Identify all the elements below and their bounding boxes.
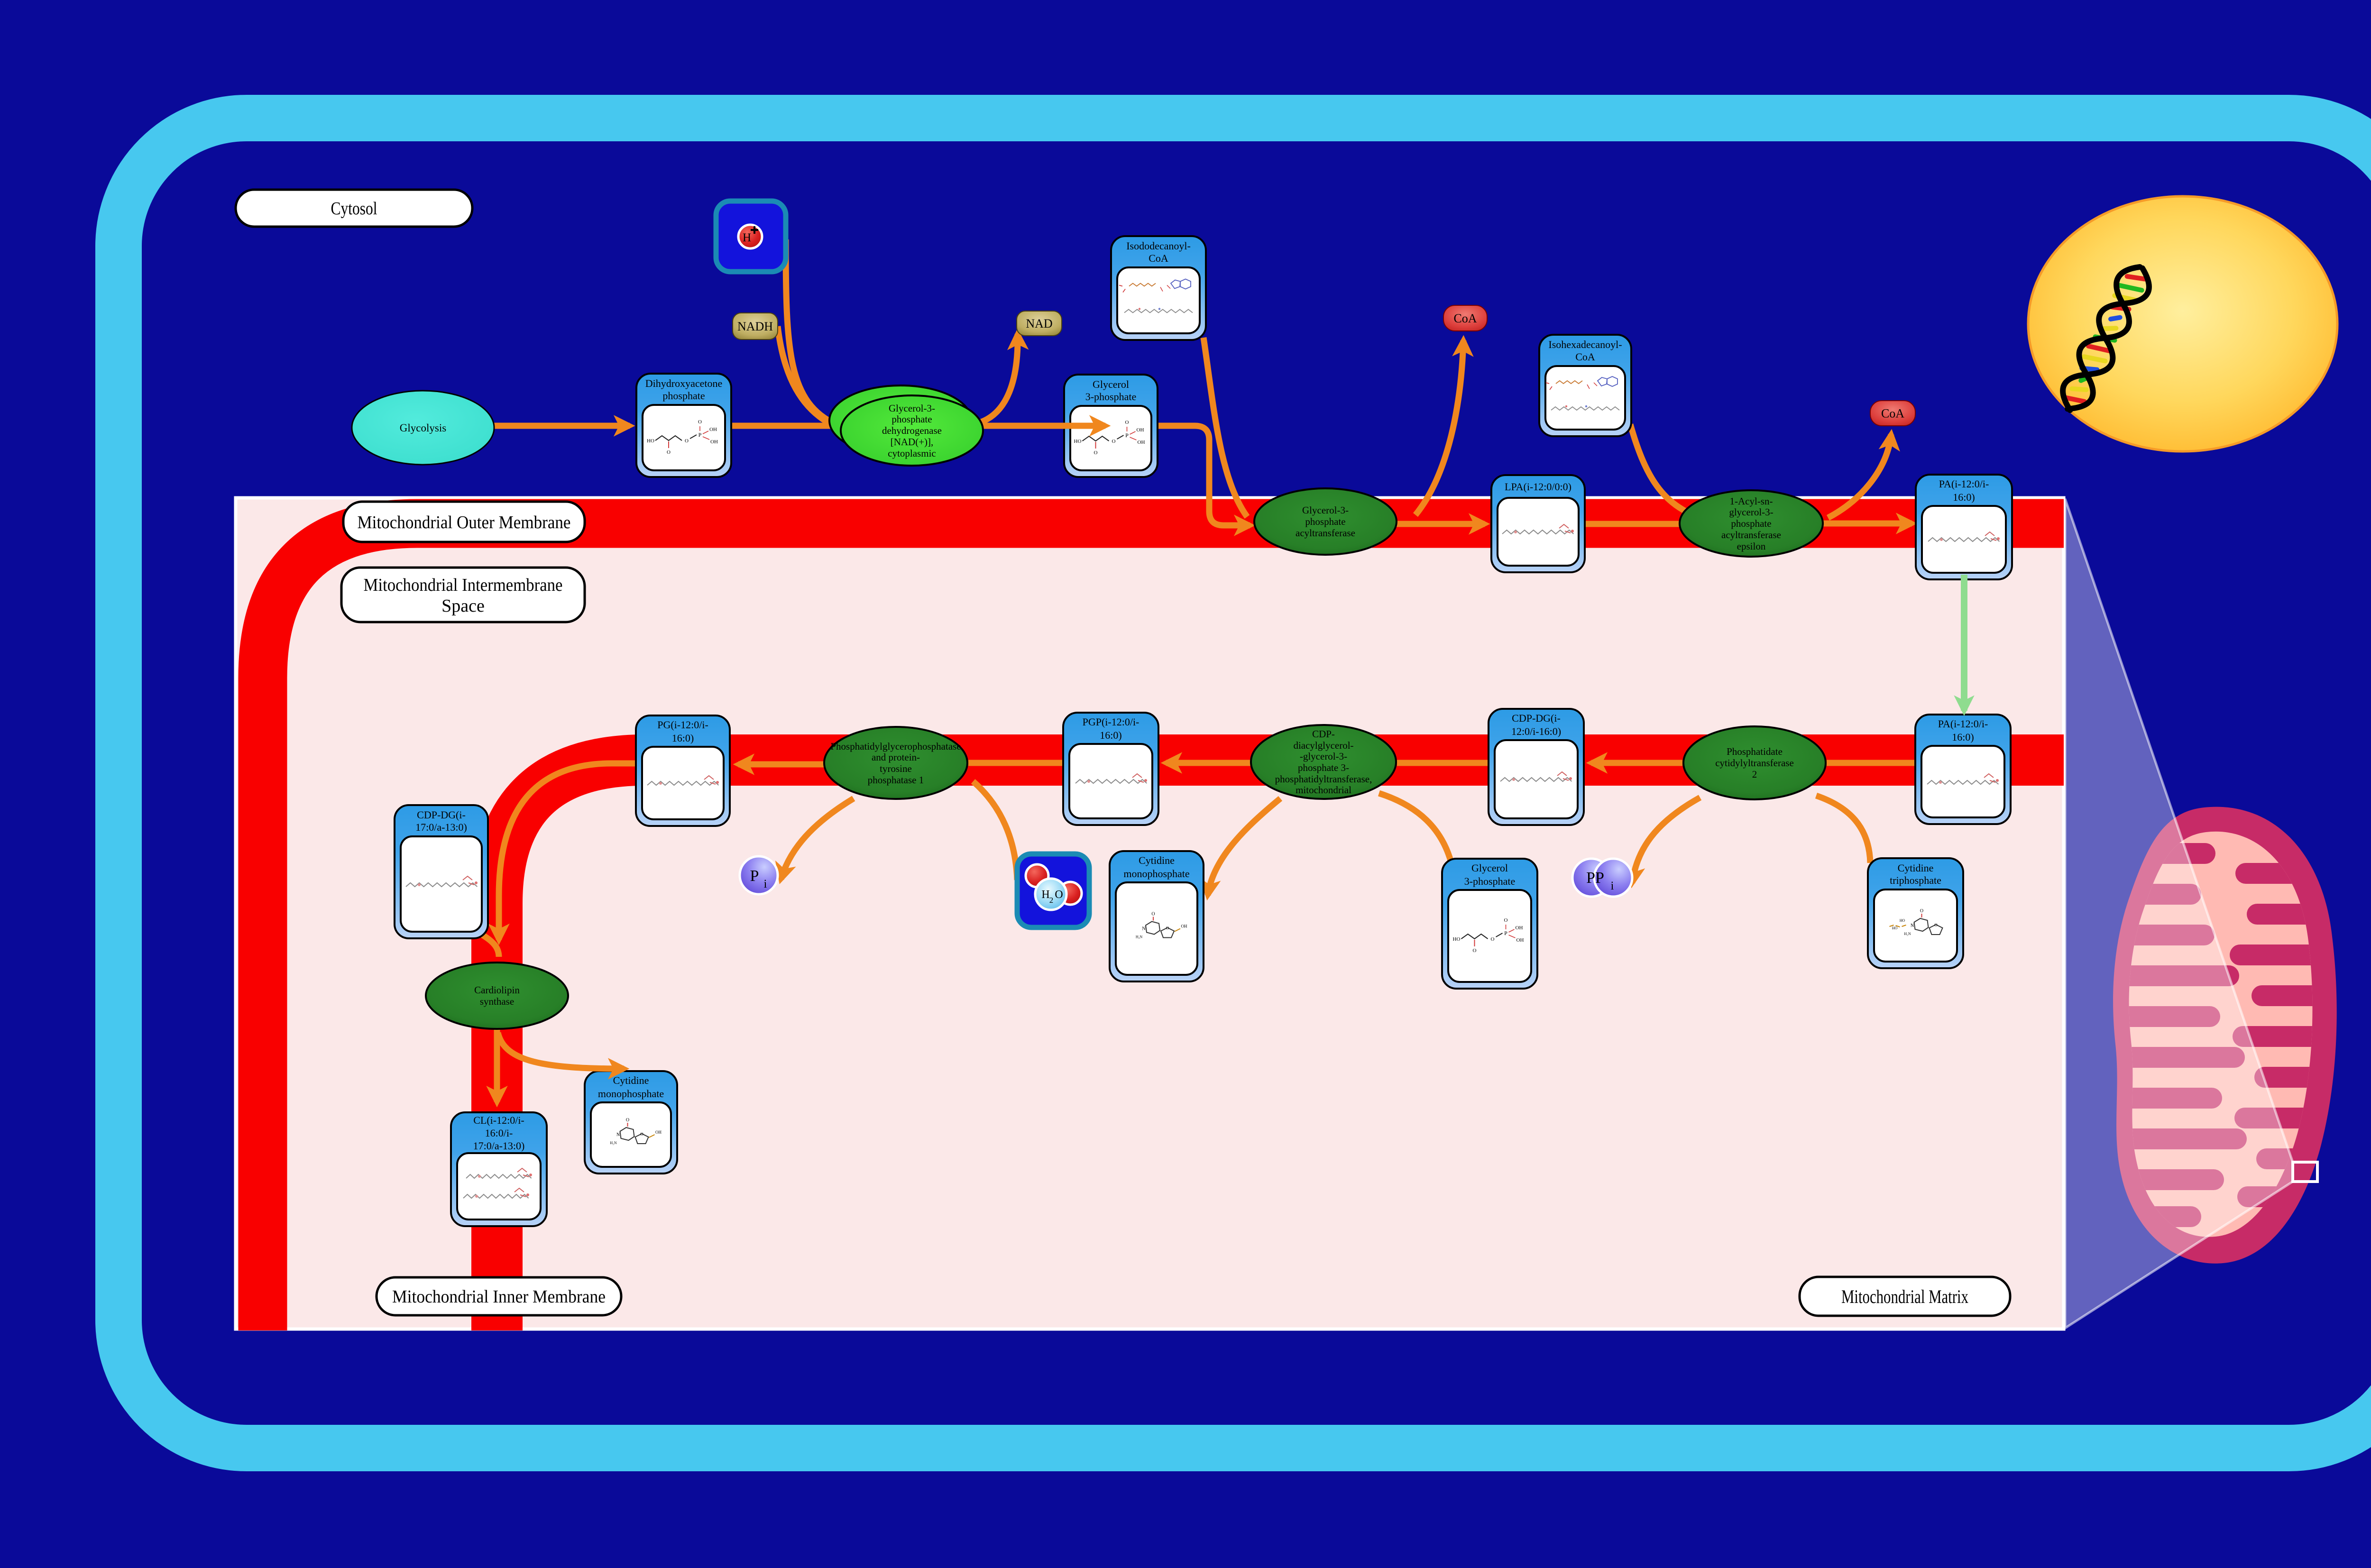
svg-text:17:0/a-13:0): 17:0/a-13:0) bbox=[415, 821, 467, 833]
svg-text:OH: OH bbox=[709, 427, 717, 432]
svg-text:O: O bbox=[1934, 923, 1938, 927]
svg-text:Glycolysis: Glycolysis bbox=[400, 422, 446, 434]
svg-text:phosphate 3-: phosphate 3- bbox=[1298, 762, 1349, 773]
svg-text:O: O bbox=[1920, 908, 1923, 914]
svg-text:O: O bbox=[1112, 439, 1116, 444]
svg-text:cytoplasmic: cytoplasmic bbox=[888, 448, 936, 459]
svg-text:N: N bbox=[1142, 926, 1145, 932]
svg-text:O: O bbox=[685, 438, 689, 444]
svg-text:3-phosphate: 3-phosphate bbox=[1085, 391, 1137, 403]
svg-text:Mitochondrial Intermembrane: Mitochondrial Intermembrane bbox=[364, 575, 563, 595]
svg-text:12:0/i-16:0): 12:0/i-16:0) bbox=[1511, 725, 1561, 737]
svg-text:H: H bbox=[1041, 889, 1049, 901]
svg-text:O: O bbox=[1094, 450, 1098, 456]
svg-text:Dihydroxyacetone: Dihydroxyacetone bbox=[645, 377, 723, 389]
svg-text:P: P bbox=[1125, 432, 1129, 439]
svg-text:PG(i-12:0/i-: PG(i-12:0/i- bbox=[657, 719, 708, 731]
svg-text:HO: HO bbox=[1900, 918, 1905, 923]
svg-text:Mitochondrial Matrix: Mitochondrial Matrix bbox=[1841, 1286, 1968, 1307]
svg-text:O: O bbox=[1473, 948, 1477, 954]
svg-text:phosphate: phosphate bbox=[662, 390, 705, 402]
svg-text:CoA: CoA bbox=[1575, 351, 1595, 363]
svg-text:16:0): 16:0) bbox=[1953, 491, 1975, 503]
svg-text:CDP-DG(i-: CDP-DG(i- bbox=[1512, 712, 1561, 724]
svg-text:O: O bbox=[640, 1132, 643, 1137]
svg-text:CoA: CoA bbox=[1453, 312, 1477, 325]
svg-text:Cytosol: Cytosol bbox=[331, 199, 377, 219]
svg-text:acyltransferase: acyltransferase bbox=[1296, 527, 1355, 539]
svg-text:OH: OH bbox=[655, 1130, 662, 1135]
svg-text:PA(i-12:0/i-: PA(i-12:0/i- bbox=[1939, 478, 1989, 490]
svg-text:P: P bbox=[698, 431, 702, 438]
svg-text:acyltransferase: acyltransferase bbox=[1721, 529, 1781, 541]
svg-text:diacylglycerol-: diacylglycerol- bbox=[1293, 740, 1353, 751]
svg-text:NAD: NAD bbox=[1026, 317, 1052, 330]
svg-text:2: 2 bbox=[1752, 769, 1757, 780]
svg-text:dehydrogenase: dehydrogenase bbox=[882, 425, 942, 436]
svg-text:O: O bbox=[1504, 917, 1508, 923]
svg-text:OH: OH bbox=[1516, 925, 1523, 931]
svg-text:16:0): 16:0) bbox=[1100, 729, 1121, 741]
svg-text:Cytidine: Cytidine bbox=[613, 1074, 649, 1086]
svg-text:Space: Space bbox=[441, 596, 485, 616]
svg-text:Phosphatidate: Phosphatidate bbox=[1727, 746, 1783, 757]
svg-text:monophosphate: monophosphate bbox=[598, 1088, 664, 1100]
svg-text:monophosphate: monophosphate bbox=[1123, 868, 1189, 880]
svg-text:17:0/a-13:0): 17:0/a-13:0) bbox=[473, 1140, 525, 1152]
svg-text:HO: HO bbox=[1453, 936, 1461, 942]
svg-text:OH: OH bbox=[1181, 924, 1187, 929]
svg-text:O: O bbox=[1151, 912, 1155, 917]
svg-text:OH: OH bbox=[1516, 937, 1524, 943]
svg-text:O: O bbox=[1491, 936, 1495, 942]
svg-text:and protein-: and protein- bbox=[872, 752, 920, 763]
svg-text:Glycerol: Glycerol bbox=[1471, 862, 1508, 874]
svg-text:-glycerol-3-: -glycerol-3- bbox=[1300, 751, 1347, 762]
svg-text:H₂N: H₂N bbox=[1136, 935, 1143, 939]
svg-text:3-phosphate: 3-phosphate bbox=[1464, 875, 1516, 887]
svg-text:Mitochondrial Outer Membrane: Mitochondrial Outer Membrane bbox=[358, 513, 571, 532]
svg-text:OH: OH bbox=[1138, 440, 1145, 445]
svg-text:Cytidine: Cytidine bbox=[1139, 854, 1175, 866]
svg-text:CDP-: CDP- bbox=[1312, 728, 1335, 740]
svg-text:H₂N: H₂N bbox=[610, 1141, 617, 1145]
svg-text:16:0/i-: 16:0/i- bbox=[485, 1127, 513, 1139]
svg-text:Mitochondrial Inner Membrane: Mitochondrial Inner Membrane bbox=[392, 1287, 606, 1307]
svg-text:epsilon: epsilon bbox=[1737, 541, 1766, 552]
svg-text:phosphatidyltransferase,: phosphatidyltransferase, bbox=[1275, 773, 1372, 785]
svg-text:16:0): 16:0) bbox=[672, 732, 694, 744]
svg-text:Cytidine: Cytidine bbox=[1898, 862, 1934, 874]
svg-text:1-Acyl-sn-: 1-Acyl-sn- bbox=[1730, 495, 1773, 507]
svg-text:P: P bbox=[750, 867, 759, 885]
svg-text:cytidylyltransferase: cytidylyltransferase bbox=[1715, 757, 1794, 769]
svg-text:2: 2 bbox=[1049, 896, 1054, 905]
svg-text:H₂N: H₂N bbox=[1904, 932, 1911, 936]
svg-text:i: i bbox=[1611, 880, 1614, 892]
svg-text:PP: PP bbox=[1586, 869, 1604, 887]
svg-text:phosphate: phosphate bbox=[891, 413, 932, 425]
svg-text:i: i bbox=[764, 878, 767, 890]
svg-text:phosphate: phosphate bbox=[1305, 516, 1345, 527]
svg-text:N: N bbox=[1911, 923, 1914, 928]
svg-text:O: O bbox=[1055, 889, 1063, 901]
svg-text:HO: HO bbox=[647, 438, 654, 444]
svg-text:O: O bbox=[1166, 926, 1169, 931]
svg-text:Cardiolipin: Cardiolipin bbox=[474, 984, 520, 996]
svg-text:tyrosine: tyrosine bbox=[880, 763, 912, 774]
svg-text:O: O bbox=[698, 419, 702, 425]
svg-text:Isododecanoyl-: Isododecanoyl- bbox=[1126, 240, 1191, 252]
svg-text:triphosphate: triphosphate bbox=[1890, 874, 1941, 886]
svg-text:CoA: CoA bbox=[1149, 252, 1168, 264]
svg-text:phosphate: phosphate bbox=[1731, 518, 1771, 529]
svg-text:H: H bbox=[743, 231, 751, 244]
svg-text:Phosphatidylglycerophosphatase: Phosphatidylglycerophosphatase bbox=[830, 741, 961, 752]
svg-text:glycerol-3-: glycerol-3- bbox=[1729, 506, 1773, 518]
svg-text:CoA: CoA bbox=[1881, 407, 1904, 421]
svg-text:PGP(i-12:0/i-: PGP(i-12:0/i- bbox=[1083, 716, 1140, 728]
svg-text:NADH: NADH bbox=[737, 320, 773, 333]
svg-text:16:0): 16:0) bbox=[1952, 731, 1974, 743]
svg-text:Isohexadecanoyl-: Isohexadecanoyl- bbox=[1548, 339, 1622, 350]
svg-text:LPA(i-12:0/0:0): LPA(i-12:0/0:0) bbox=[1505, 481, 1571, 493]
svg-text:PA(i-12:0/i-: PA(i-12:0/i- bbox=[1938, 718, 1988, 730]
svg-text:CDP-DG(i-: CDP-DG(i- bbox=[417, 809, 466, 821]
svg-text:P: P bbox=[1504, 930, 1507, 936]
svg-text:O: O bbox=[626, 1118, 629, 1123]
svg-text:mitochondrial: mitochondrial bbox=[1296, 784, 1351, 796]
svg-text:Glycerol-3-: Glycerol-3- bbox=[889, 403, 935, 414]
svg-text:synthase: synthase bbox=[480, 996, 514, 1007]
svg-text:O: O bbox=[667, 449, 671, 455]
svg-text:HO: HO bbox=[1892, 926, 1898, 930]
svg-text:Glycerol: Glycerol bbox=[1093, 378, 1129, 390]
svg-text:HO: HO bbox=[1074, 439, 1082, 444]
svg-text:[NAD(+)],: [NAD(+)], bbox=[891, 436, 934, 448]
svg-text:phosphatase 1: phosphatase 1 bbox=[868, 774, 924, 786]
svg-text:O: O bbox=[1125, 420, 1129, 425]
svg-text:OH: OH bbox=[1137, 427, 1144, 433]
svg-text:OH: OH bbox=[710, 439, 718, 445]
svg-text:CL(i-12:0/i-: CL(i-12:0/i- bbox=[473, 1114, 524, 1126]
svg-text:Glycerol-3-: Glycerol-3- bbox=[1302, 504, 1349, 516]
svg-text:N: N bbox=[616, 1132, 620, 1137]
